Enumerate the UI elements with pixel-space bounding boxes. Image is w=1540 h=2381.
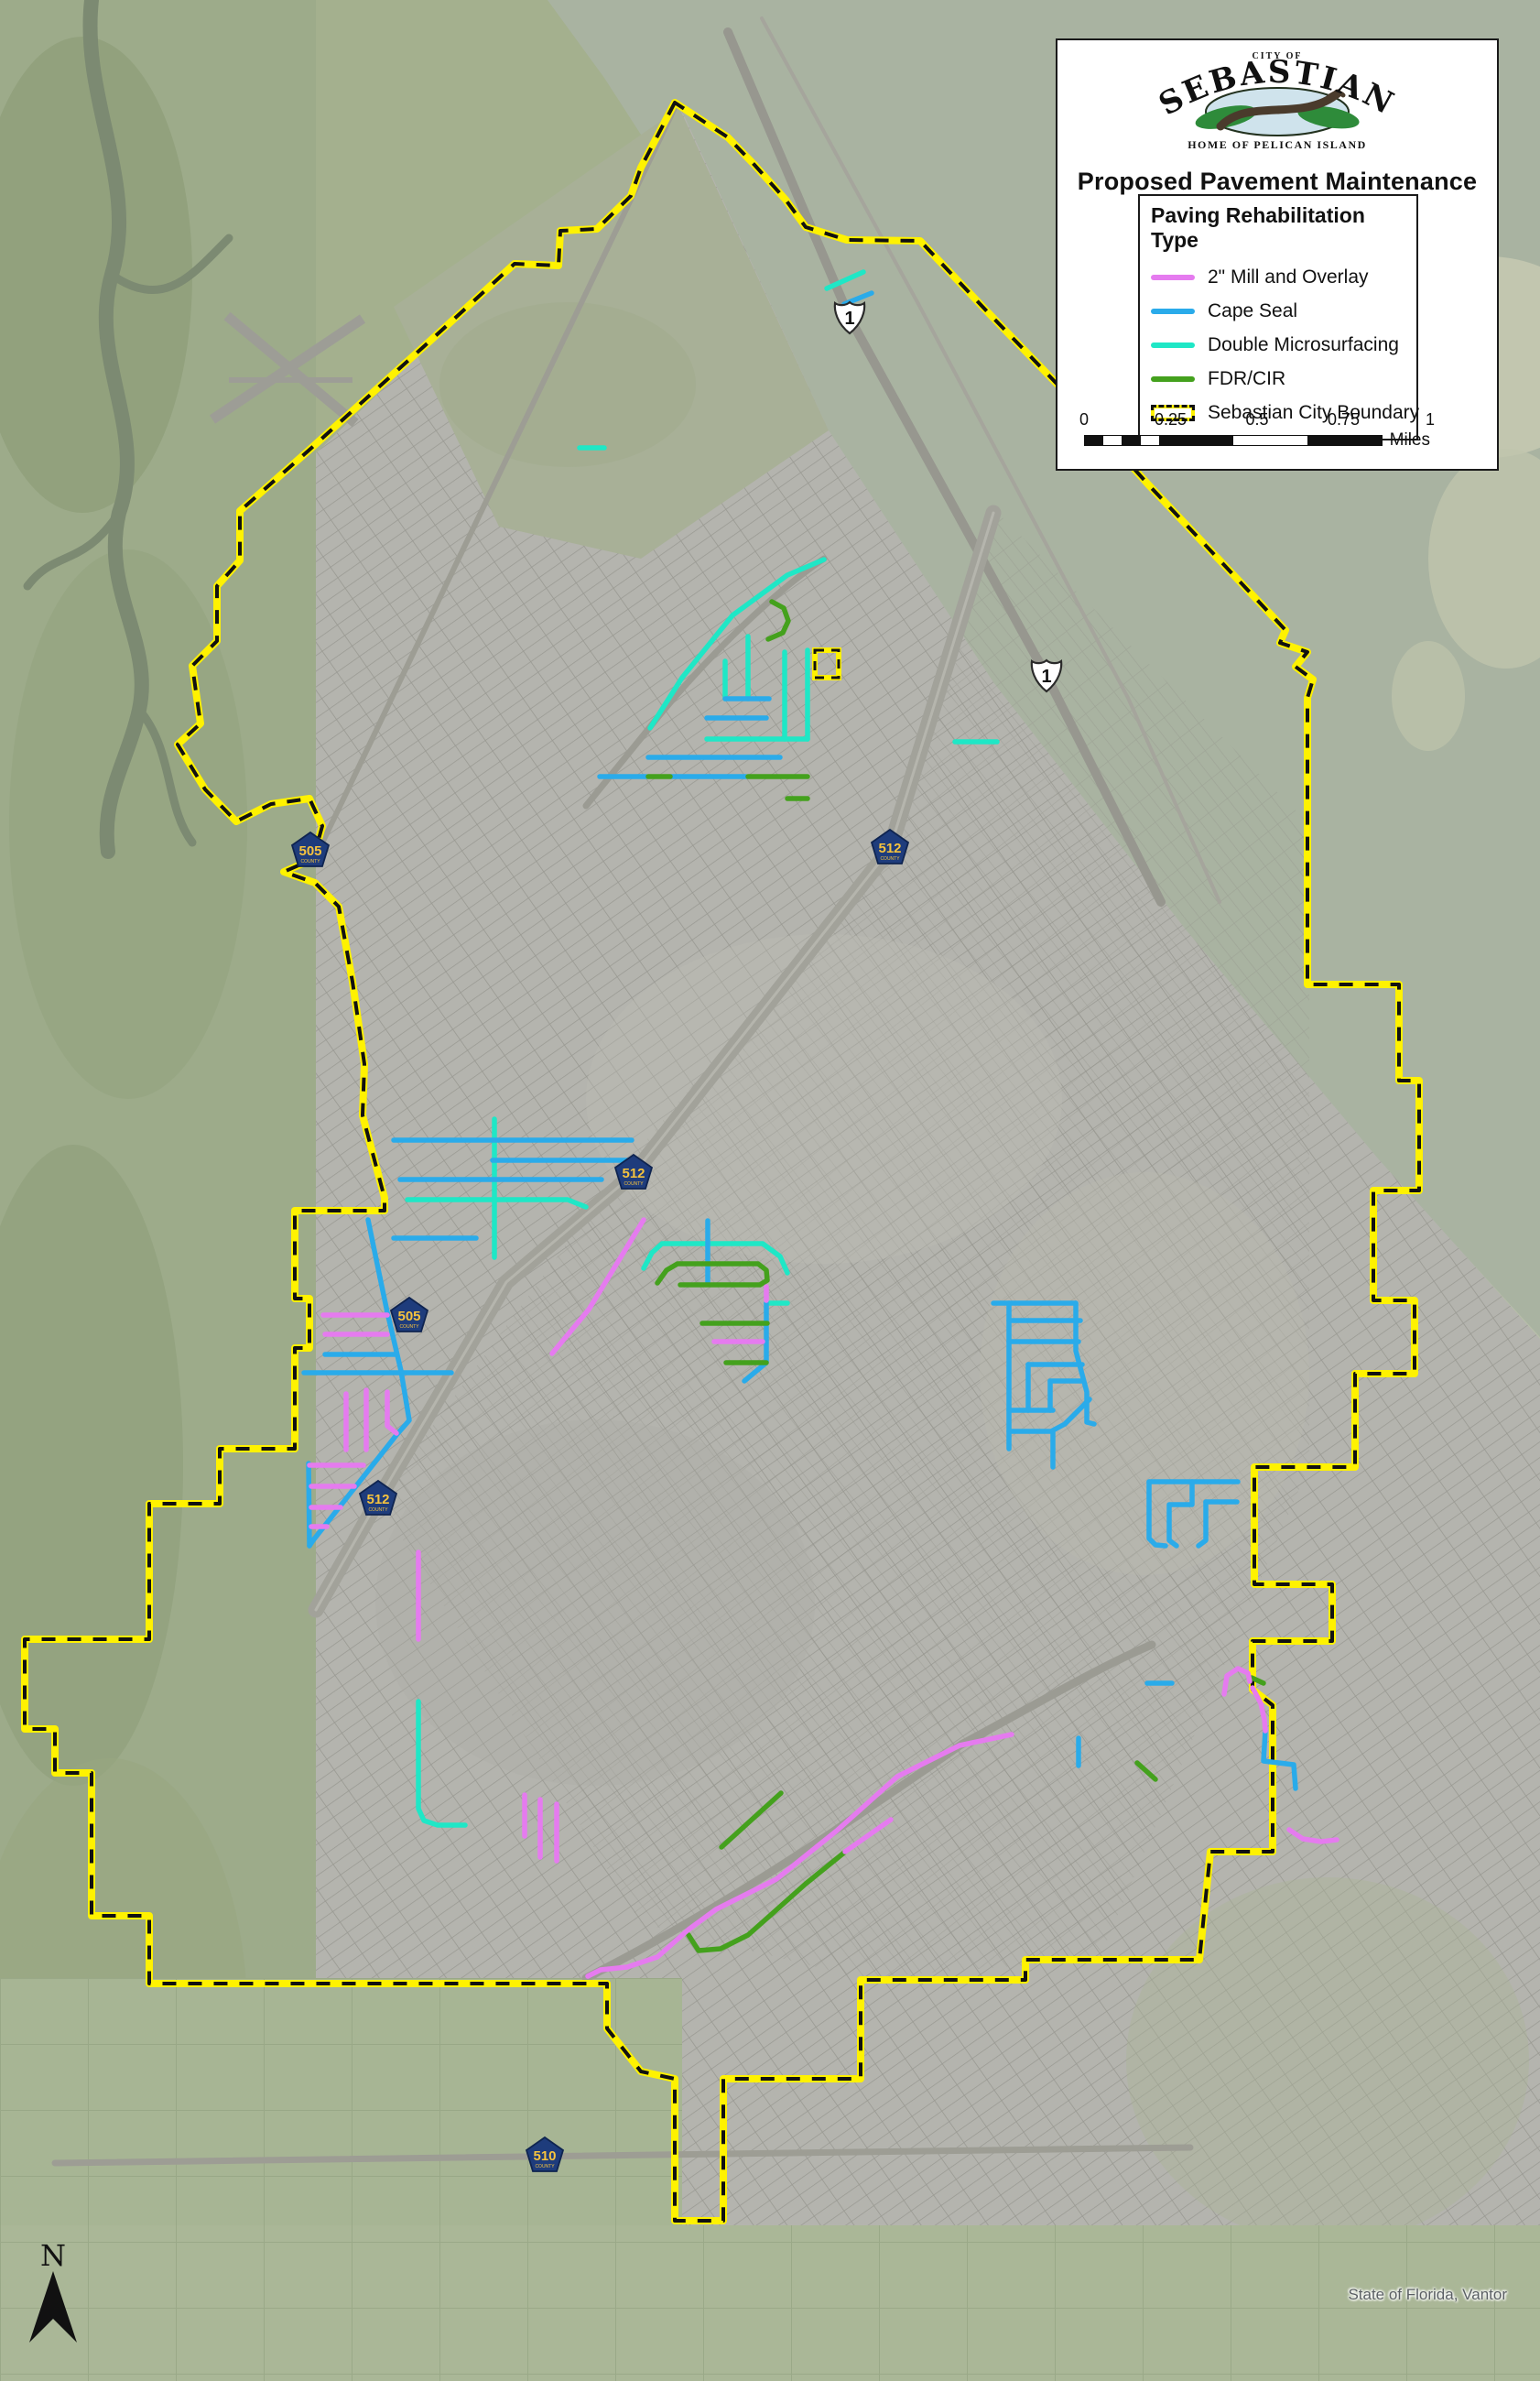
legend-label: Double Microsurfacing	[1208, 334, 1399, 356]
mill-overlay-swatch	[1151, 275, 1195, 280]
svg-text:512: 512	[878, 841, 901, 856]
scale-bar: 0 0.25 0.5 0.75 1 Miles	[1084, 410, 1430, 451]
fdr-cir-swatch	[1151, 376, 1195, 382]
legend-label: 2" Mill and Overlay	[1208, 266, 1369, 288]
svg-text:512: 512	[366, 1492, 389, 1507]
city-logo: CITY OF SEBASTIAN HOME OF PELICAN ISLAND	[1057, 46, 1497, 158]
scale-tick: 0.75	[1328, 410, 1360, 429]
svg-text:512: 512	[622, 1166, 645, 1181]
title-legend-panel: CITY OF SEBASTIAN HOME OF PELICAN ISLAND…	[1056, 38, 1499, 471]
legend-item-mill-overlay: 2" Mill and Overlay	[1151, 260, 1405, 294]
svg-text:COUNTY: COUNTY	[368, 1507, 388, 1513]
scale-tick: 0.25	[1155, 410, 1187, 429]
legend-label: Cape Seal	[1208, 300, 1297, 322]
cape-seal-swatch	[1151, 309, 1195, 314]
svg-text:510: 510	[533, 2148, 556, 2164]
logo-tagline: HOME OF PELICAN ISLAND	[1188, 138, 1367, 151]
imagery-attribution: State of Florida, Vantor	[1348, 2286, 1507, 2304]
legend: Paving Rehabilitation Type 2" Mill and O…	[1138, 194, 1418, 440]
svg-text:505: 505	[397, 1309, 420, 1324]
svg-text:COUNTY: COUNTY	[880, 856, 900, 862]
legend-title: Paving Rehabilitation Type	[1151, 203, 1405, 253]
north-label: N	[16, 2242, 90, 2269]
double-microsurfacing-swatch	[1151, 342, 1195, 348]
legend-label: FDR/CIR	[1208, 368, 1285, 390]
svg-text:1: 1	[844, 309, 854, 329]
north-arrow: N	[16, 2242, 90, 2353]
scale-bar-labels: 0 0.25 0.5 0.75 1	[1084, 410, 1430, 430]
legend-item-cape-seal: Cape Seal	[1151, 294, 1405, 328]
svg-text:COUNTY: COUNTY	[399, 1324, 419, 1330]
svg-text:1: 1	[1041, 667, 1051, 687]
scale-tick: 0.5	[1245, 410, 1268, 429]
scale-tick: 0	[1079, 410, 1089, 429]
svg-text:505: 505	[298, 843, 321, 859]
legend-item-fdr-cir: FDR/CIR	[1151, 362, 1405, 396]
scale-unit: Miles	[1390, 430, 1430, 451]
scale-tick: 1	[1426, 410, 1435, 429]
svg-text:COUNTY: COUNTY	[624, 1181, 644, 1187]
svg-text:COUNTY: COUNTY	[300, 859, 320, 864]
svg-text:COUNTY: COUNTY	[535, 2164, 555, 2169]
legend-item-double-microsurfacing: Double Microsurfacing	[1151, 328, 1405, 362]
scale-bar-graphic	[1084, 435, 1383, 446]
north-arrow-icon	[29, 2271, 77, 2343]
map-root: 11512COUNTY505COUNTY512COUNTY505COUNTY51…	[0, 0, 1540, 2381]
